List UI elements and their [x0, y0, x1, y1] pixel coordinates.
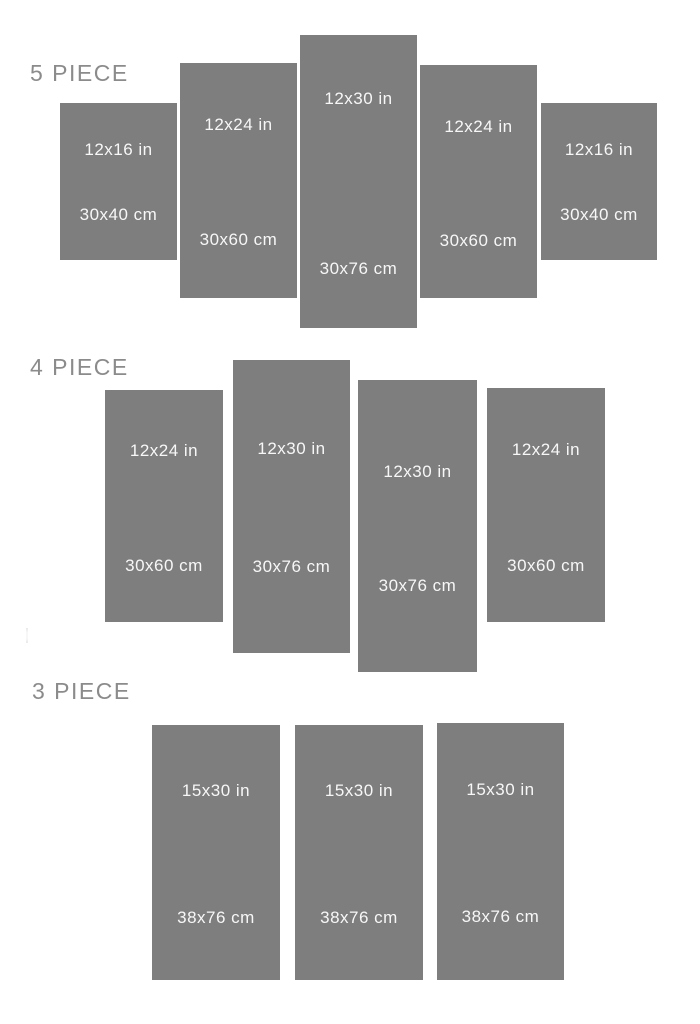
size-label-inches: 12x16 in	[60, 140, 177, 160]
section-label-4-piece: 4 PIECE	[30, 356, 129, 379]
size-label-cm: 30x76 cm	[300, 259, 417, 279]
panel-5piece-2: 12x24 in 30x60 cm	[180, 63, 297, 298]
size-label-cm: 38x76 cm	[295, 908, 423, 928]
size-label-inches: 15x30 in	[437, 780, 564, 800]
panel-5piece-3: 12x30 in 30x76 cm	[300, 35, 417, 328]
size-label-inches: 12x30 in	[300, 89, 417, 109]
size-label-inches: 12x30 in	[358, 462, 477, 482]
size-label-inches: 12x24 in	[420, 117, 537, 137]
panel-4piece-3: 12x30 in 30x76 cm	[358, 380, 477, 672]
panel-3piece-3: 15x30 in 38x76 cm	[437, 723, 564, 980]
size-label-cm: 30x60 cm	[487, 556, 605, 576]
size-label-cm: 30x76 cm	[358, 576, 477, 596]
size-label-cm: 30x40 cm	[60, 205, 177, 225]
size-label-inches: 12x24 in	[180, 115, 297, 135]
size-label-inches: 12x24 in	[105, 441, 223, 461]
canvas-size-chart: 5 PIECE 12x16 in 30x40 cm 12x24 in 30x60…	[0, 0, 700, 1024]
panel-4piece-1: 12x24 in 30x60 cm	[105, 390, 223, 622]
panel-5piece-4: 12x24 in 30x60 cm	[420, 65, 537, 298]
size-label-inches: 15x30 in	[295, 781, 423, 801]
section-label-3-piece: 3 PIECE	[32, 680, 131, 703]
size-label-cm: 30x40 cm	[541, 205, 657, 225]
faint-artifact-mark	[26, 628, 28, 643]
panel-3piece-2: 15x30 in 38x76 cm	[295, 725, 423, 980]
section-label-5-piece: 5 PIECE	[30, 62, 129, 85]
size-label-inches: 15x30 in	[152, 781, 280, 801]
size-label-cm: 30x60 cm	[420, 231, 537, 251]
size-label-cm: 38x76 cm	[152, 908, 280, 928]
panel-4piece-2: 12x30 in 30x76 cm	[233, 360, 350, 653]
panel-5piece-1: 12x16 in 30x40 cm	[60, 103, 177, 260]
size-label-cm: 30x76 cm	[233, 557, 350, 577]
size-label-cm: 30x60 cm	[105, 556, 223, 576]
size-label-cm: 30x60 cm	[180, 230, 297, 250]
panel-3piece-1: 15x30 in 38x76 cm	[152, 725, 280, 980]
panel-4piece-4: 12x24 in 30x60 cm	[487, 388, 605, 622]
size-label-inches: 12x16 in	[541, 140, 657, 160]
panel-5piece-5: 12x16 in 30x40 cm	[541, 103, 657, 260]
size-label-cm: 38x76 cm	[437, 907, 564, 927]
size-label-inches: 12x30 in	[233, 439, 350, 459]
size-label-inches: 12x24 in	[487, 440, 605, 460]
